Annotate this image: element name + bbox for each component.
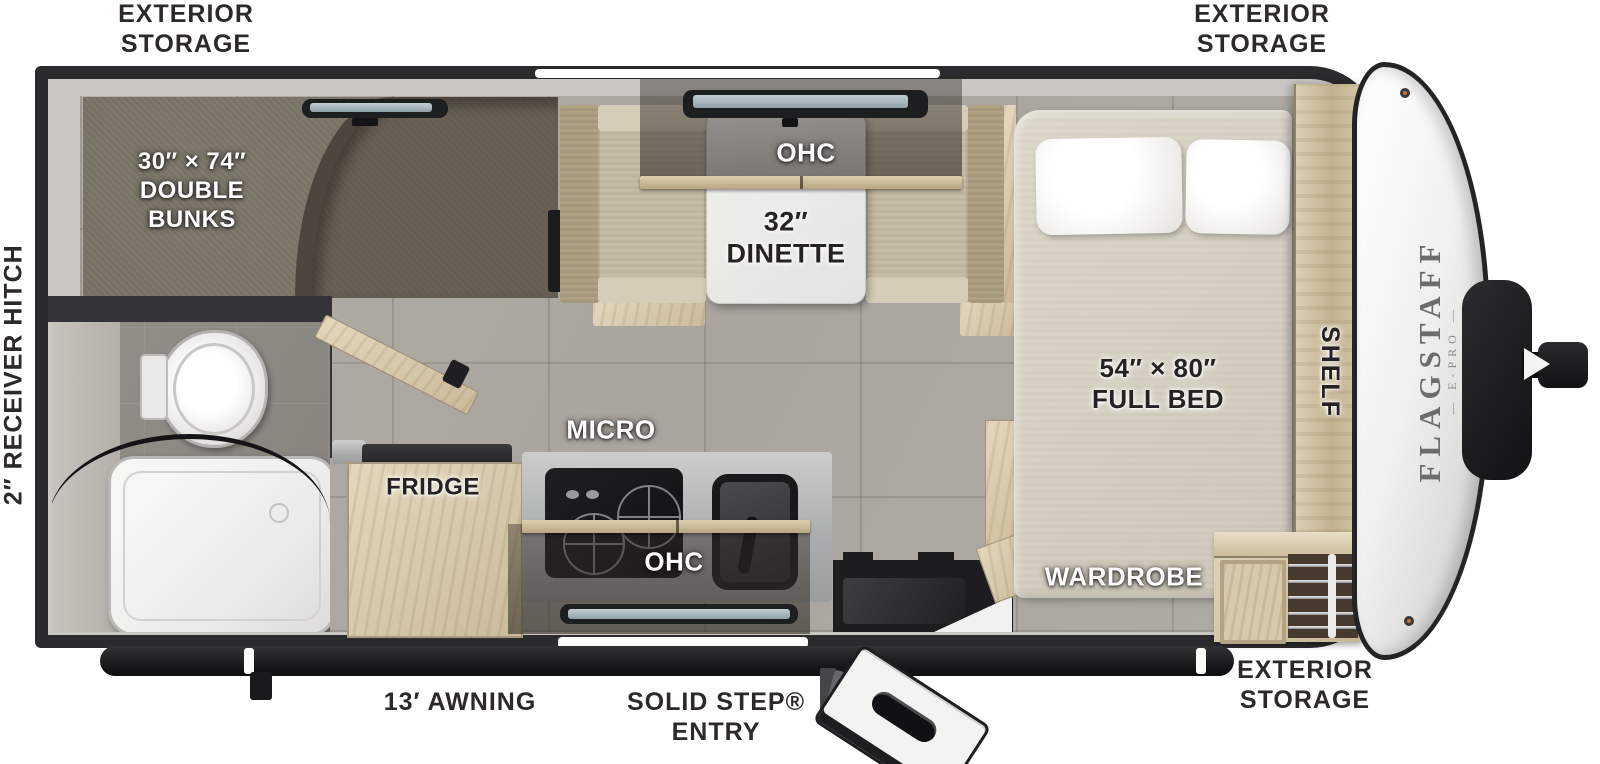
cooktop-knob — [586, 490, 599, 499]
well-trim — [843, 552, 873, 562]
wire-shelf — [1288, 612, 1358, 615]
label-receiver-hitch: 2″ RECEIVER HITCH — [0, 215, 29, 535]
awning-arm — [250, 672, 272, 700]
marker-light-icon — [1404, 616, 1414, 626]
bath-wall — [48, 296, 332, 322]
label-double-bunks: 30″ × 74″ DOUBLE BUNKS — [138, 148, 246, 234]
label-micro: MICRO — [566, 414, 655, 445]
label-line: 13′ AWNING — [384, 688, 537, 718]
bunk-window-glass — [310, 103, 432, 112]
label-exterior-storage-bottom-right: EXTERIOR STORAGE — [1237, 656, 1373, 715]
label-wardrobe: WARDROBE — [1045, 561, 1204, 592]
label-line: STORAGE — [118, 30, 254, 60]
top-wall-window — [535, 69, 940, 78]
dinette-window-latch — [782, 118, 798, 127]
label-line: DOUBLE — [138, 177, 246, 206]
well-trim — [918, 552, 954, 562]
label-line: FRIDGE — [386, 474, 480, 503]
label-line: 54″ × 80″ — [1092, 353, 1224, 384]
bunk-window — [302, 99, 448, 118]
label-line: SHELF — [1315, 326, 1345, 418]
label-line: STORAGE — [1237, 686, 1373, 716]
rack-cabinet-door — [1220, 560, 1286, 644]
label-line: MICRO — [566, 414, 655, 445]
bunk-window-latch — [352, 118, 378, 126]
bench-base-right — [960, 302, 1018, 336]
toilet — [158, 330, 268, 448]
cooktop-knob — [566, 490, 579, 499]
label-line: 2″ RECEIVER HITCH — [0, 215, 29, 535]
kitchen-window — [560, 604, 798, 624]
label-line: OHC — [776, 137, 835, 168]
marker-light-icon — [1400, 88, 1410, 98]
wire-shelf — [1288, 626, 1358, 629]
label-line: EXTERIOR — [1237, 656, 1373, 686]
label-line: BUNKS — [138, 205, 246, 234]
label-line: 32″ — [726, 206, 845, 238]
label-line: ENTRY — [627, 718, 805, 748]
shelf-split — [676, 520, 679, 533]
awning-bracket — [244, 648, 254, 674]
label-dinette-ohc: OHC — [776, 137, 835, 168]
label-dinette: 32″ DINETTE — [726, 206, 845, 271]
label-exterior-storage-top-left: EXTERIOR STORAGE — [118, 0, 254, 59]
label-solid-step-entry: SOLID STEP® ENTRY — [627, 688, 805, 747]
bench-base-left — [593, 300, 705, 326]
propane-cover — [1462, 280, 1532, 480]
wire-shelf — [1288, 596, 1358, 599]
cabinet-shelf-edge — [522, 520, 810, 533]
brand-model: — E-PRO — — [1445, 190, 1459, 530]
dinette-window-glass — [693, 95, 908, 108]
label-line: SOLID STEP® — [627, 688, 805, 718]
label-line: 30″ × 74″ — [138, 148, 246, 177]
wire-shelves — [1288, 554, 1358, 638]
brand-name: FLAGSTAFF — [1414, 190, 1445, 530]
dinette-window — [683, 90, 928, 118]
counter-edge — [332, 440, 366, 464]
bench-cap — [598, 277, 706, 303]
kitchen-window-glass — [568, 609, 790, 619]
pillow — [1035, 137, 1183, 236]
rv-floorplan: EXTERIOR STORAGE EXTERIOR STORAGE EXTERI… — [0, 0, 1600, 764]
label-line: FULL BED — [1092, 384, 1224, 415]
label-fridge: FRIDGE — [386, 474, 480, 503]
label-line: OHC — [644, 546, 703, 577]
bathroom — [52, 322, 330, 632]
wire-shelf — [1288, 564, 1358, 567]
wire-shelf — [1288, 580, 1358, 583]
label-line: EXTERIOR — [1194, 0, 1330, 30]
dinette-bench-right-back — [968, 105, 1004, 303]
label-full-bed: 54″ × 80″ FULL BED — [1092, 353, 1224, 415]
shelf-split — [800, 176, 803, 189]
toilet-tank — [140, 354, 168, 420]
label-line: STORAGE — [1194, 30, 1330, 60]
label-awning: 13′ AWNING — [384, 688, 537, 718]
label-exterior-storage-top-right: EXTERIOR STORAGE — [1194, 0, 1330, 59]
step-tread — [867, 687, 940, 746]
storage-rack-cabinet — [1214, 532, 1360, 642]
wire-shelf-post — [1328, 554, 1336, 638]
awning-bracket — [1196, 648, 1206, 674]
label-line: EXTERIOR — [118, 0, 254, 30]
label-line: WARDROBE — [1045, 561, 1204, 592]
pillow — [1185, 139, 1291, 235]
brand-logo: FLAGSTAFF — E-PRO — — [1414, 190, 1462, 530]
label-shelf: SHELF — [1315, 326, 1345, 418]
bench-cap — [866, 277, 968, 303]
toilet-seat — [173, 343, 255, 435]
label-kitchen-ohc: OHC — [644, 546, 703, 577]
label-line: DINETTE — [726, 238, 845, 270]
dinette-bench-left-back — [560, 105, 600, 303]
step-well-floor — [843, 578, 965, 624]
